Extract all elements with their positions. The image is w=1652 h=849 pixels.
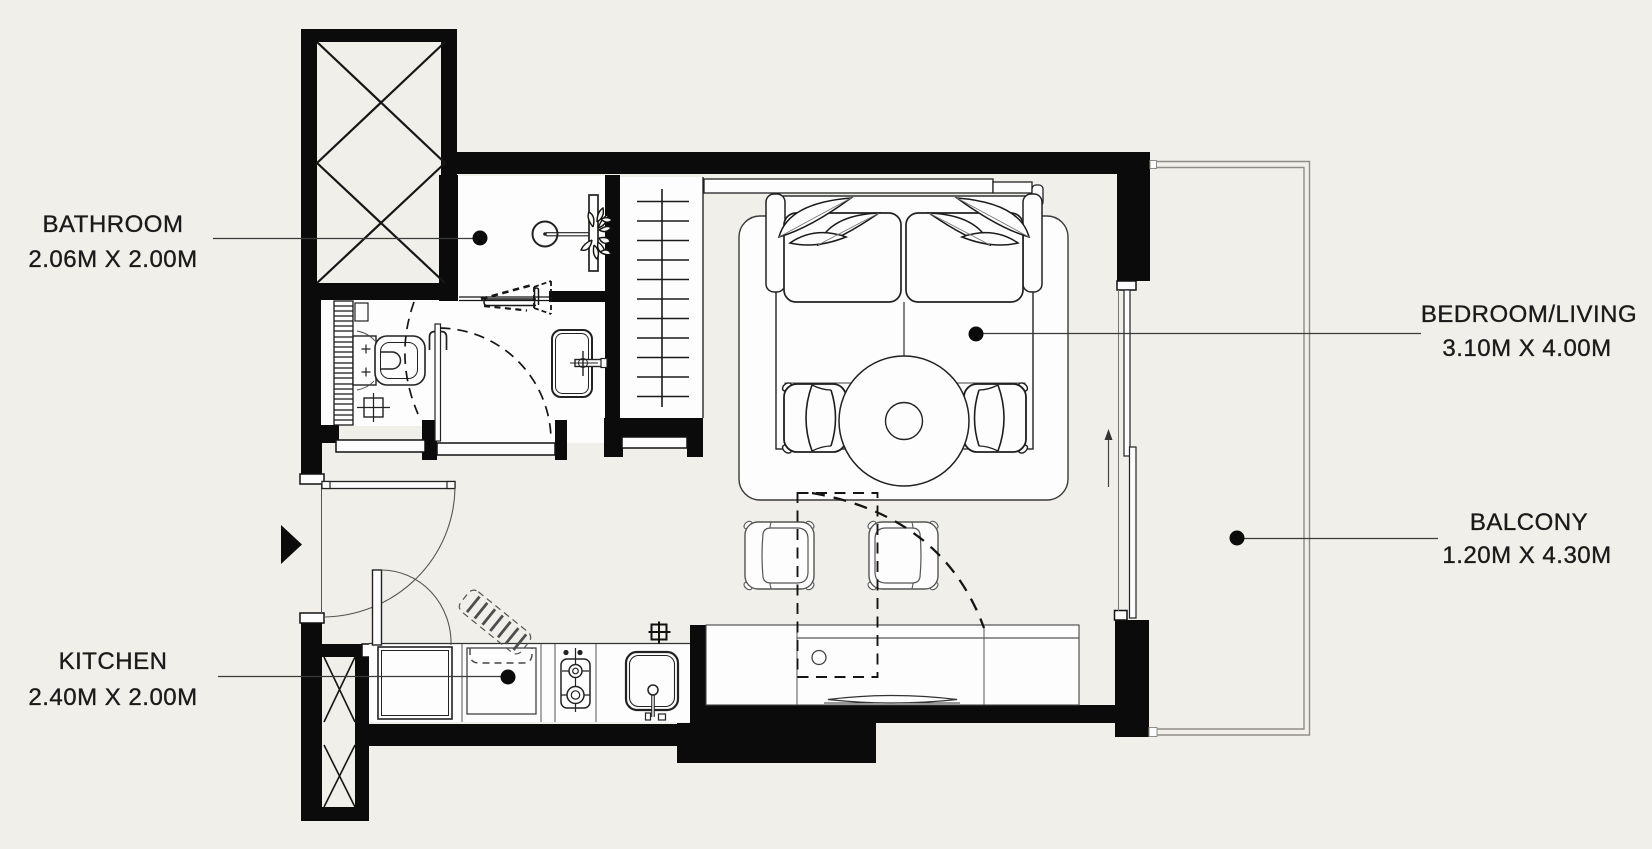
svg-text:3.10M X 4.00M: 3.10M X 4.00M (1442, 335, 1611, 362)
svg-text:KITCHEN: KITCHEN (59, 648, 168, 675)
svg-text:BEDROOM/LIVING: BEDROOM/LIVING (1421, 301, 1637, 328)
svg-text:BALCONY: BALCONY (1470, 509, 1588, 536)
svg-text:BATHROOM: BATHROOM (43, 211, 184, 238)
svg-text:2.40M X 2.00M: 2.40M X 2.00M (28, 684, 197, 711)
svg-text:1.20M X 4.30M: 1.20M X 4.30M (1442, 542, 1611, 569)
svg-text:2.06M X 2.00M: 2.06M X 2.00M (28, 246, 197, 273)
